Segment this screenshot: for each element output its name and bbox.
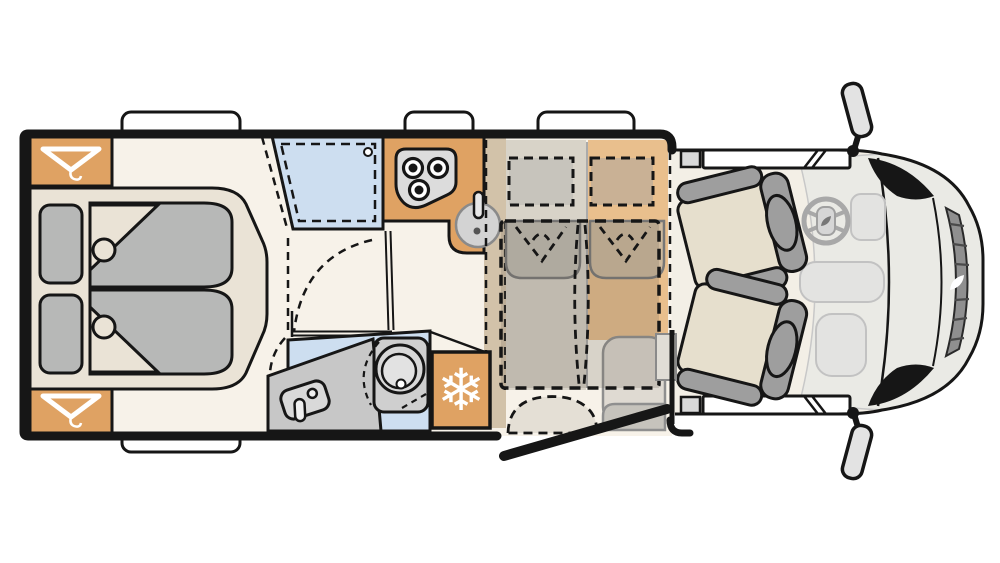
duvet-curl bbox=[93, 316, 115, 338]
floor-plan-canvas: ❄ bbox=[0, 0, 1000, 563]
shower-drain bbox=[364, 148, 372, 156]
dash-console-upper bbox=[851, 194, 885, 240]
side-mirror-bottom bbox=[840, 407, 873, 481]
dinette-zone bbox=[501, 140, 668, 430]
cab-window-bottom bbox=[681, 396, 850, 414]
pillow bbox=[40, 205, 82, 283]
cab-window-top bbox=[681, 150, 850, 168]
dash-console-center bbox=[800, 262, 884, 302]
wardrobe-bottom bbox=[30, 383, 112, 436]
duvet-curl bbox=[93, 239, 115, 261]
floor-plan-svg: ❄ bbox=[0, 0, 1000, 563]
wall-corner bbox=[670, 420, 690, 433]
refrigerator: ❄ bbox=[432, 352, 490, 428]
cab-zone bbox=[672, 81, 983, 480]
bed-pillow-dashed bbox=[591, 158, 653, 205]
bed-pillow-dashed bbox=[509, 158, 573, 205]
door-window bbox=[703, 150, 850, 168]
pillow bbox=[40, 295, 82, 373]
toilet-flush bbox=[397, 380, 406, 389]
faucet bbox=[474, 192, 483, 218]
snowflake-icon: ❄ bbox=[437, 356, 486, 424]
window-cap bbox=[681, 151, 700, 167]
sink-drain bbox=[474, 228, 481, 235]
window-cap bbox=[681, 397, 700, 413]
side-mirror-top bbox=[840, 81, 873, 157]
dash-console-lower bbox=[816, 314, 866, 376]
